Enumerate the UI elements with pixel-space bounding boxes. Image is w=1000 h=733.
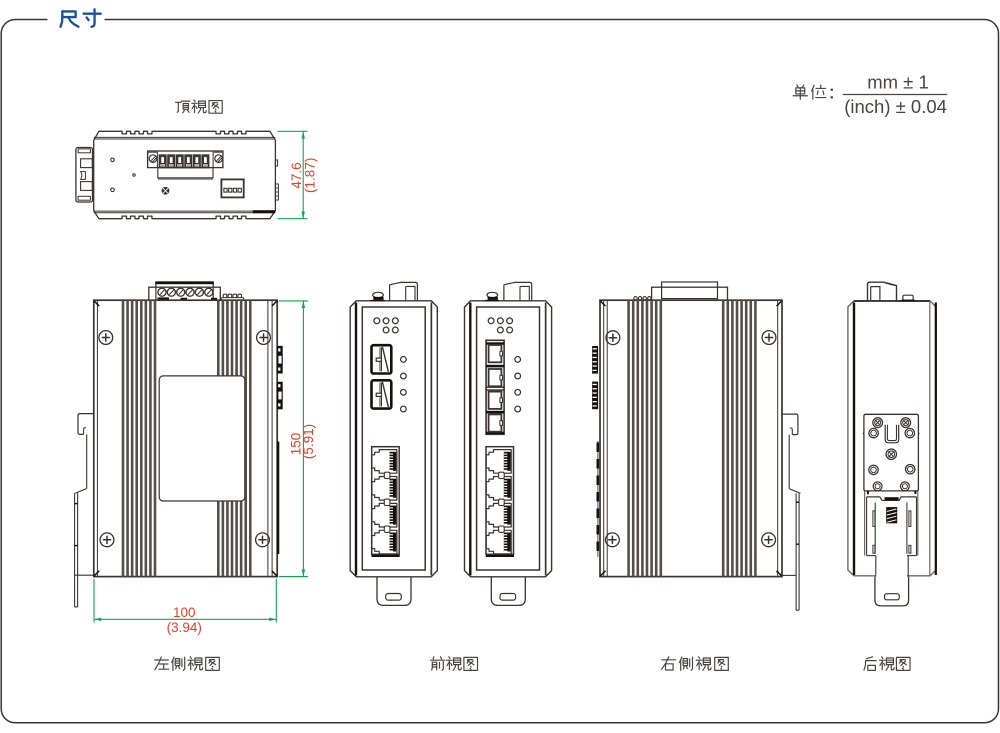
svg-text:(3.94): (3.94): [167, 620, 202, 635]
svg-text:mm ± 1: mm ± 1: [867, 72, 929, 93]
svg-text:100: 100: [173, 605, 196, 620]
svg-text:(inch) ± 0.04: (inch) ± 0.04: [844, 96, 947, 117]
svg-text:(5.91): (5.91): [301, 424, 316, 459]
svg-text:(1.87): (1.87): [303, 158, 318, 193]
